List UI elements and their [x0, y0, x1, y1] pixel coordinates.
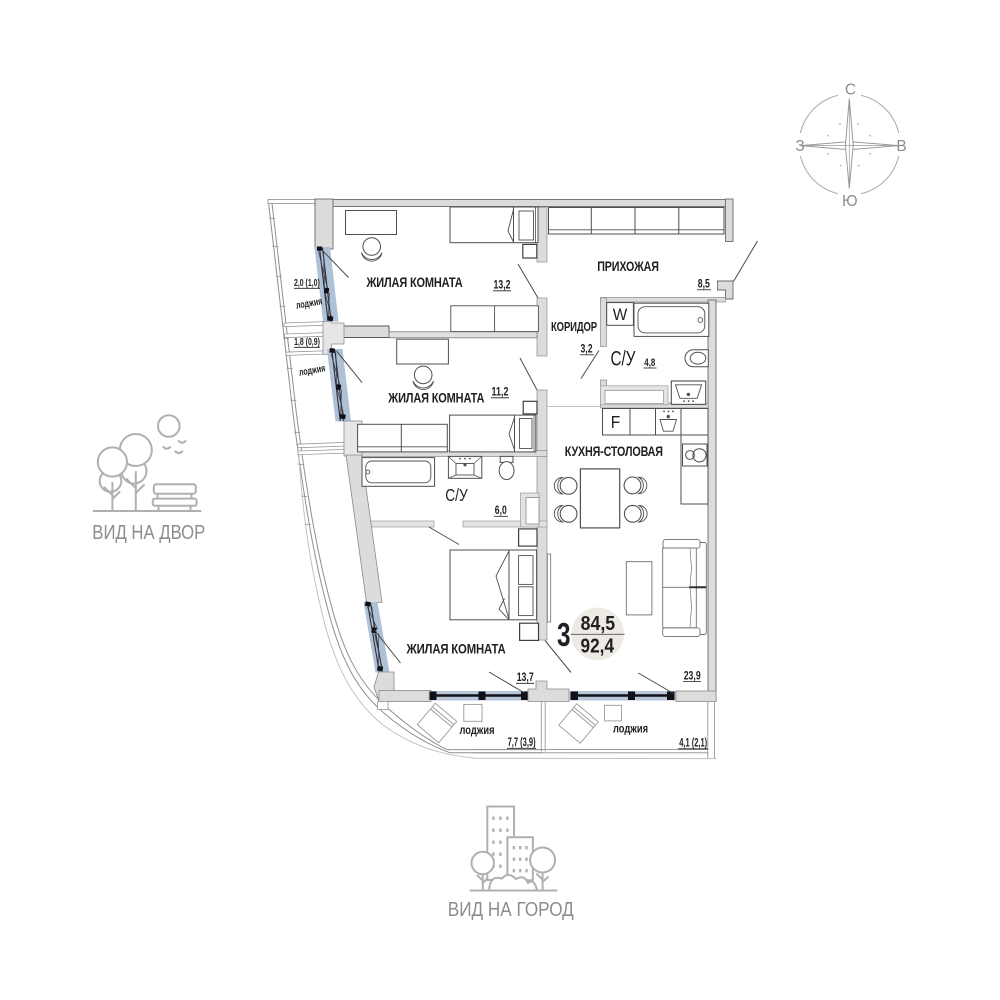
- svg-text:ПРИХОЖАЯ: ПРИХОЖАЯ: [597, 258, 659, 274]
- svg-text:ВИД НА ГОРОД: ВИД НА ГОРОД: [448, 898, 574, 921]
- svg-text:2,0 (1,0): 2,0 (1,0): [294, 278, 320, 289]
- svg-text:ВИД НА ДВОР: ВИД НА ДВОР: [92, 521, 205, 544]
- svg-text:ЖИЛАЯ КОМНАТА: ЖИЛАЯ КОМНАТА: [406, 641, 506, 657]
- svg-text:С/У: С/У: [611, 348, 636, 371]
- svg-text:84,5: 84,5: [581, 613, 616, 635]
- svg-text:13,2: 13,2: [494, 278, 511, 292]
- svg-text:7,7 (3,9): 7,7 (3,9): [508, 735, 536, 749]
- svg-text:4,8: 4,8: [644, 357, 655, 369]
- svg-text:F: F: [611, 412, 621, 432]
- svg-text:С: С: [845, 82, 856, 99]
- svg-text:23,9: 23,9: [684, 668, 701, 682]
- svg-text:ЖИЛАЯ КОМНАТА: ЖИЛАЯ КОМНАТА: [388, 390, 485, 406]
- svg-text:3: 3: [557, 616, 571, 653]
- svg-text:КОРИДОР: КОРИДОР: [551, 319, 597, 334]
- svg-text:8,5: 8,5: [698, 277, 710, 291]
- svg-text:В: В: [896, 138, 906, 155]
- svg-text:6,0: 6,0: [495, 503, 507, 517]
- svg-text:13,7: 13,7: [517, 670, 534, 684]
- svg-text:92,4: 92,4: [581, 636, 615, 658]
- svg-text:W: W: [613, 305, 628, 324]
- svg-text:лоджия: лоджия: [613, 724, 648, 736]
- svg-text:4,1 (2,1): 4,1 (2,1): [679, 736, 707, 750]
- svg-text:КУХНЯ-СТОЛОВАЯ: КУХНЯ-СТОЛОВАЯ: [565, 443, 663, 459]
- svg-text:1,8 (0,9): 1,8 (0,9): [294, 337, 320, 348]
- svg-text:3,2: 3,2: [581, 342, 593, 356]
- svg-text:З: З: [795, 138, 804, 155]
- svg-text:С/У: С/У: [445, 485, 468, 505]
- svg-text:11,2: 11,2: [492, 385, 509, 399]
- svg-text:лоджия: лоджия: [460, 725, 495, 737]
- svg-text:ЖИЛАЯ КОМНАТА: ЖИЛАЯ КОМНАТА: [366, 274, 463, 290]
- svg-text:Ю: Ю: [842, 193, 858, 210]
